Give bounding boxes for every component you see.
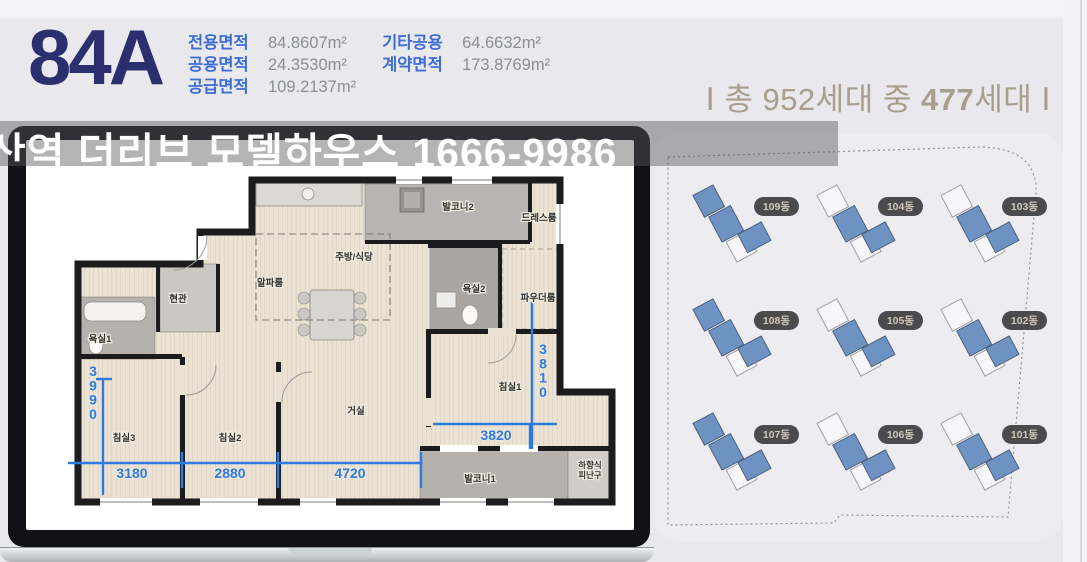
building-label-pill: 107동 — [754, 425, 799, 444]
laptop-screen: 현관알파룸주방/식당발코니2드레스룸욕실2파우더룸욕실1침실3침실2거실침실1발… — [26, 140, 634, 530]
siteplan-card: 109동 104동 — [652, 133, 1063, 541]
area-row: 공급면적 109.2137m² — [188, 78, 356, 97]
room-label: 현관 — [169, 293, 187, 305]
ad-banner: 산역 더리브 모델하우스 1666-9986 — [0, 121, 838, 166]
room-label: 발코니2 — [442, 201, 474, 213]
dimension-label: 2880 — [214, 465, 245, 481]
page: 84A 전용면적 84.8607m² 공용면적 24.3530m² 공급면적 1… — [0, 0, 1087, 562]
area-col-2: 기타공용 64.6632m² 계약면적 173.8769m² — [382, 34, 550, 97]
area-value: 84.8607m² — [268, 34, 347, 53]
building-label-pill: 108동 — [754, 311, 799, 330]
building-cluster — [799, 181, 903, 271]
area-label: 전용면적 — [188, 34, 258, 53]
laptop-base-notch — [288, 548, 372, 554]
dimension-label: 3180 — [116, 465, 147, 481]
area-value: 109.2137m² — [268, 78, 356, 97]
siteplan-building: 103동 — [923, 177, 1045, 275]
area-row: 공용면적 24.3530m² — [188, 56, 356, 75]
building-label-pill: 102동 — [1002, 311, 1047, 330]
building-cluster — [675, 181, 779, 271]
building-label-pill: 105동 — [878, 311, 923, 330]
room-label: 알파룸 — [257, 277, 283, 289]
households-highlight: 477 — [921, 82, 974, 117]
area-row: 전용면적 84.8607m² — [188, 34, 356, 53]
building-label-pill: 109동 — [754, 197, 799, 216]
area-row: 계약면적 173.8769m² — [382, 56, 550, 75]
siteplan-building: 109동 — [675, 177, 797, 275]
building-cluster — [799, 295, 903, 385]
households-prefix: Ⅰ 총 952세대 중 — [706, 82, 921, 117]
dining-table — [298, 290, 366, 340]
dimension-label: 3990 — [89, 363, 97, 422]
dimension-label: 3820 — [480, 427, 511, 443]
area-value: 24.3530m² — [268, 56, 347, 75]
room-label: 욕실1 — [89, 333, 112, 345]
room-label: 드레스룸 — [522, 212, 557, 224]
households-suffix: 세대 Ⅰ — [974, 82, 1051, 117]
dimension-label: 3810 — [539, 341, 547, 400]
unit-code: 84A — [28, 18, 162, 96]
right-divider-line — [1080, 0, 1082, 562]
room-label: 발코니1 — [464, 473, 496, 485]
building-label-pill: 106동 — [878, 425, 923, 444]
room-label: 침실2 — [219, 432, 242, 444]
building-label-pill: 103동 — [1002, 197, 1047, 216]
room-label: 침실1 — [499, 381, 522, 393]
room-label: 거실 — [347, 405, 365, 417]
households-count: Ⅰ 총 952세대 중 477세대 Ⅰ — [706, 74, 1051, 119]
siteplan-building: 102동 — [923, 291, 1045, 389]
room-label: 하향식피난구 — [578, 460, 602, 480]
building-cluster — [675, 295, 779, 385]
siteplan-building: 108동 — [675, 291, 797, 389]
building-cluster — [923, 181, 1027, 271]
area-label: 공급면적 — [188, 78, 258, 97]
area-label: 기타공용 — [382, 34, 452, 53]
building-label-pill: 104동 — [878, 197, 923, 216]
dimension-label: 4720 — [334, 465, 365, 481]
room-label: 파우더룸 — [521, 292, 556, 304]
siteplan-building: 104동 — [799, 177, 921, 275]
area-col-1: 전용면적 84.8607m² 공용면적 24.3530m² 공급면적 109.2… — [188, 34, 356, 97]
siteplan-building: 105동 — [799, 291, 921, 389]
siteplan-grid: 109동 104동 — [674, 177, 1046, 503]
room-label: 욕실2 — [463, 283, 486, 295]
area-spec-table: 전용면적 84.8607m² 공용면적 24.3530m² 공급면적 109.2… — [188, 34, 550, 97]
room-label: 주방/식당 — [335, 251, 373, 263]
siteplan-building: 101동 — [923, 405, 1045, 503]
area-label: 계약면적 — [382, 56, 452, 75]
siteplan-building: 106동 — [799, 405, 921, 503]
laptop-base — [0, 547, 654, 562]
building-cluster — [923, 295, 1027, 385]
siteplan-building: 107동 — [675, 405, 797, 503]
building-cluster — [799, 409, 903, 499]
building-label-pill: 101동 — [1002, 425, 1047, 444]
floorplan: 현관알파룸주방/식당발코니2드레스룸욕실2파우더룸욕실1침실3침실2거실침실1발… — [60, 152, 620, 530]
ad-banner-text: 산역 더리브 모델하우스 1666-9986 — [0, 121, 617, 166]
area-value: 64.6632m² — [462, 34, 541, 53]
area-value: 173.8769m² — [462, 56, 550, 75]
building-cluster — [675, 409, 779, 499]
building-cluster — [923, 409, 1027, 499]
area-row: 기타공용 64.6632m² — [382, 34, 550, 53]
area-label: 공용면적 — [188, 56, 258, 75]
room-label: 침실3 — [113, 432, 136, 444]
laptop: 현관알파룸주방/식당발코니2드레스룸욕실2파우더룸욕실1침실3침실2거실침실1발… — [8, 126, 650, 547]
right-background-strip — [1063, 0, 1087, 562]
